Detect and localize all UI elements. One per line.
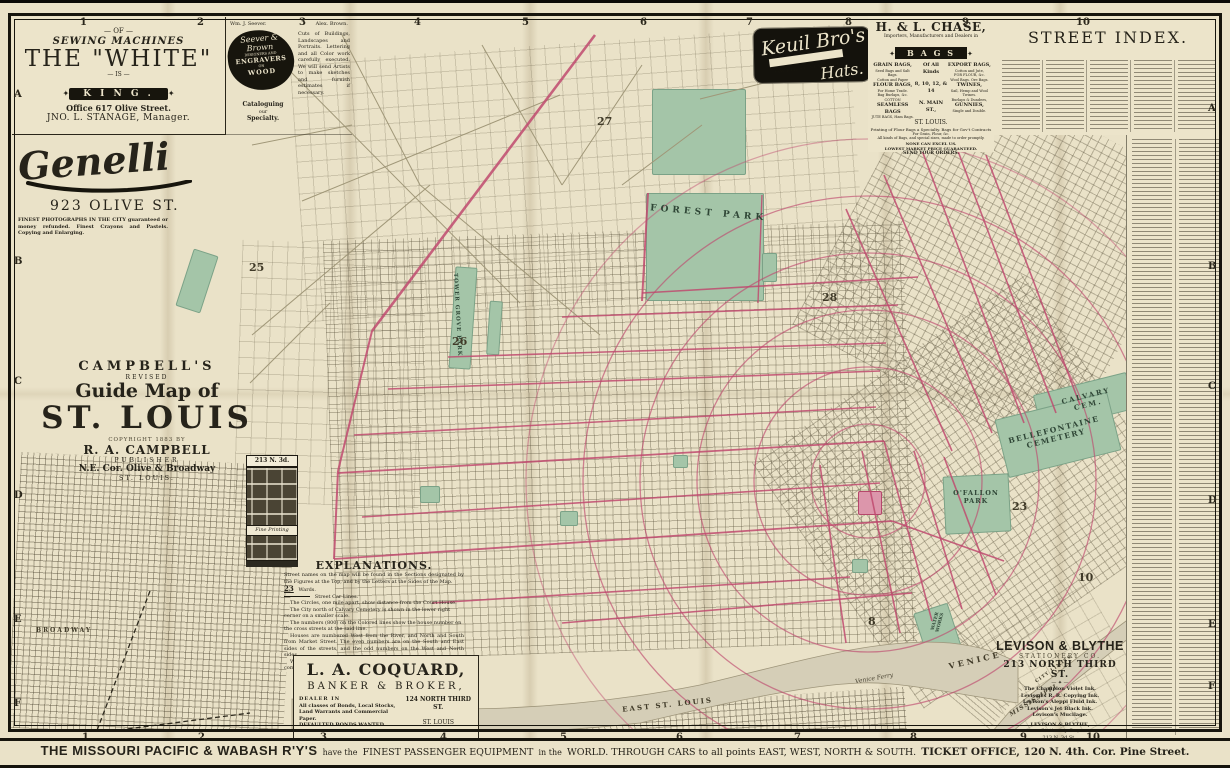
title-st-louis: ST. LOUIS bbox=[36, 402, 258, 435]
title-city: ST. LOUIS. bbox=[36, 474, 258, 482]
grid-letter-right: C bbox=[1208, 381, 1216, 392]
grid-letter-right: E bbox=[1208, 619, 1216, 630]
banner-in-the: in the bbox=[538, 748, 561, 757]
grid-number-top: 4 bbox=[414, 17, 421, 28]
chase-col-middle: Of All Kinds 8, 10, 12, & 14 N. MAIN ST.… bbox=[914, 62, 948, 127]
white-ad-manager: JNO. L. STANAGE, Manager. bbox=[12, 113, 225, 123]
seever-specialty: Specialty. bbox=[234, 115, 292, 123]
broadway-label: BROADWAY bbox=[36, 627, 92, 634]
chase-foot1: Printing of Flour Bags a Specialty. Bags… bbox=[868, 127, 994, 132]
railroad-banner: THE MISSOURI PACIFIC & WABASH R'Y'S have… bbox=[0, 738, 1230, 768]
explanations-p3: The numbers (800) on the Colored lines s… bbox=[284, 620, 464, 633]
levison-name: LEVISON & BLYTHE bbox=[996, 639, 1124, 653]
map-title-block: CAMPBELL'S REVISED Guide Map of ST. LOUI… bbox=[36, 359, 258, 495]
grid-letter-right: B bbox=[1208, 261, 1216, 272]
building-fine-printing-sign: Fine Printing bbox=[247, 525, 297, 536]
genelli-body-text: FINEST PHOTOGRAPHS IN THE CITY guarantee… bbox=[18, 217, 168, 237]
grid-letter-left: B bbox=[14, 256, 22, 267]
street-index-divider bbox=[1175, 139, 1176, 735]
explanations-p1: The Circles, one mile apart, show distan… bbox=[284, 600, 464, 607]
building-facade: Fine Printing bbox=[246, 467, 298, 561]
white-ad-office: Office 617 Olive Street. bbox=[12, 103, 225, 113]
levison-item: Levison's Mucilage. bbox=[996, 712, 1124, 719]
grid-number-top: 2 bbox=[197, 17, 204, 28]
grid-number-top: 9 bbox=[962, 17, 969, 28]
coquard-city: ST. LOUIS bbox=[403, 719, 473, 727]
street-index-column bbox=[1178, 60, 1216, 132]
street-index-title: STREET INDEX. bbox=[994, 28, 1222, 47]
street-index-divider bbox=[1174, 60, 1175, 132]
white-ad-of: — OF — bbox=[12, 27, 225, 36]
grid-number-top: 10 bbox=[1076, 17, 1090, 28]
banner-world-through-cars: WORLD. THROUGH CARS to all points EAST, … bbox=[567, 747, 916, 758]
street-index-column bbox=[1090, 60, 1128, 132]
title-publisher: PUBLISHER bbox=[36, 457, 258, 464]
chase-foot3: All kinds of Bags, and special sizes, ma… bbox=[868, 136, 994, 141]
map-sheet-scan: FOREST PARK CALVARYCEM. BELLEFONTAINECEM… bbox=[0, 0, 1230, 768]
grid-number-top: 8 bbox=[845, 17, 852, 28]
explanations-p2: The City north of Calvary Cemetery is sh… bbox=[284, 607, 464, 620]
coquard-address: 124 NORTH THIRD ST. bbox=[403, 696, 473, 711]
seever-brown-engravers-ad: Wm. J. Seever. Alex. Brown. Seever & Bro… bbox=[226, 17, 352, 135]
explanations-block: EXPLANATIONS. Street names on the map wi… bbox=[284, 559, 464, 653]
coquard-name: L. A. COQUARD, bbox=[294, 660, 478, 679]
street-index-column bbox=[1132, 139, 1172, 735]
street-index-divider bbox=[1042, 60, 1043, 132]
chase-name: H. & L. CHASE, bbox=[868, 20, 994, 34]
ward-number: 25 bbox=[249, 261, 264, 274]
banner-finest-equipment: FINEST PASSENGER EQUIPMENT bbox=[363, 747, 534, 758]
street-index-divider bbox=[1130, 60, 1131, 132]
street-index-side bbox=[1126, 135, 1223, 739]
banner-ticket-office: TICKET OFFICE, 120 N. 4th. Cor. Pine Str… bbox=[921, 746, 1189, 758]
street-car-line-symbol bbox=[284, 596, 310, 597]
ward-number: 26 bbox=[452, 335, 467, 348]
street-index-top: STREET INDEX. bbox=[994, 16, 1222, 135]
grid-letter-left: C bbox=[14, 376, 22, 387]
grid-number-top: 1 bbox=[80, 17, 87, 28]
white-ad-is: — IS — bbox=[12, 71, 225, 79]
banner-railroad-names: THE MISSOURI PACIFIC & WABASH R'Y'S bbox=[41, 743, 318, 758]
coquard-body2: Land Warrants and Commercial Paper. bbox=[299, 709, 403, 722]
hats-ad: Keuil Bro's FOURTH ST. NEAR PINE Hats. bbox=[753, 26, 872, 84]
explanations-intro: Street names on the map will be found in… bbox=[284, 572, 464, 585]
levison-address: 213 NORTH THIRD ST. bbox=[996, 660, 1124, 680]
coquard-body3: DEFAULTED BONDS WANTED. bbox=[299, 722, 403, 729]
banner-have-the: have the bbox=[323, 748, 358, 757]
paper-sheet: FOREST PARK CALVARYCEM. BELLEFONTAINECEM… bbox=[0, 3, 1230, 768]
title-publisher-address: N.E. Cor. Olive & Broadway bbox=[36, 464, 258, 474]
grid-letter-right: A bbox=[1208, 103, 1216, 114]
white-ad-king-banner: ✦K I N G .✦ bbox=[12, 81, 225, 100]
chase-bags-ad: H. & L. CHASE, Importers, Manufacturers … bbox=[868, 16, 994, 152]
street-index-column bbox=[1002, 60, 1040, 132]
white-sewing-machines-ad: — OF — SEWING MACHINES THE "WHITE" — IS … bbox=[12, 17, 226, 135]
street-index-column bbox=[1134, 60, 1172, 132]
grid-number-top: 3 bbox=[299, 17, 306, 28]
ward-number: 27 bbox=[597, 115, 612, 128]
chase-subtitle: Importers, Manufacturers and Dealers in bbox=[868, 34, 994, 39]
chase-col-right: EXPORT BAGS, Cotton and Jute, FOR FLOUR,… bbox=[948, 62, 991, 127]
chase-col-left: GRAIN BAGS, Seed Bags and Salt Bags. Cot… bbox=[871, 62, 914, 127]
seever-cataloguing: Cataloguing bbox=[234, 101, 292, 109]
chase-foot5: LOWEST MARKET PRICE GUARANTEED. bbox=[868, 146, 994, 151]
title-campbells: CAMPBELL'S bbox=[36, 359, 258, 374]
grid-number-top: 7 bbox=[746, 17, 753, 28]
coquard-banker-ad: L. A. COQUARD, BANKER & BROKER, DEALER I… bbox=[293, 655, 479, 741]
coquard-title: BANKER & BROKER, bbox=[294, 681, 478, 692]
legend-wards: 23 Wards. bbox=[284, 586, 464, 594]
levison-building-illustration: 213 N. 3d. Fine Printing bbox=[246, 455, 298, 569]
grid-letter-left: D bbox=[14, 490, 23, 501]
street-index-column bbox=[1046, 60, 1084, 132]
grid-letter-left: A bbox=[14, 89, 22, 100]
white-ad-the-white: THE "WHITE" bbox=[12, 47, 225, 71]
explanations-title: EXPLANATIONS. bbox=[284, 559, 464, 572]
seever-logo: Seever & Brown DESIGNERS AND ENGRAVERS O… bbox=[226, 27, 297, 93]
grid-number-top: 6 bbox=[640, 17, 647, 28]
chase-foot6: SEND YOUR ORDERS. bbox=[868, 151, 994, 157]
ward-number: 28 bbox=[822, 291, 837, 304]
genelli-name: Genelli bbox=[17, 134, 219, 186]
levison-blythe-ad: LEVISON & BLYTHE STATIONERY CO. 213 NORT… bbox=[996, 639, 1124, 739]
grid-letter-right: F bbox=[1208, 681, 1215, 692]
ward-number: 23 bbox=[1012, 500, 1027, 513]
seever-credit-right: Alex. Brown. bbox=[316, 21, 348, 28]
seever-credit-left: Wm. J. Seever. bbox=[230, 21, 266, 28]
levison-sub: STATIONERY CO. bbox=[996, 653, 1124, 660]
ofallon-park-label: O'FALLONPARK bbox=[946, 489, 1006, 505]
street-index-column bbox=[1179, 139, 1219, 735]
chase-bags-banner: ✦B A G S✦ bbox=[868, 41, 994, 60]
ward-number: 10 bbox=[1078, 571, 1093, 584]
grid-letter-left: E bbox=[14, 614, 22, 625]
seever-services-text: Cuts of Buildings, Landscapes and Portra… bbox=[298, 31, 350, 96]
genelli-address: 923 OLIVE ST. bbox=[50, 198, 218, 214]
grid-letter-right: D bbox=[1208, 495, 1217, 506]
grid-letter-left: F bbox=[14, 698, 21, 709]
building-roof-sign: 213 N. 3d. bbox=[246, 455, 298, 467]
ward-number: 8 bbox=[868, 615, 876, 628]
genelli-photographs-ad: Genelli 923 OLIVE ST. FINEST PHOTOGRAPHS… bbox=[18, 141, 218, 261]
grid-number-top: 5 bbox=[522, 17, 529, 28]
title-guide-map-of: Guide Map of bbox=[36, 381, 258, 402]
street-index-divider bbox=[1086, 60, 1087, 132]
title-publisher-name: R. A. CAMPBELL bbox=[36, 443, 258, 457]
